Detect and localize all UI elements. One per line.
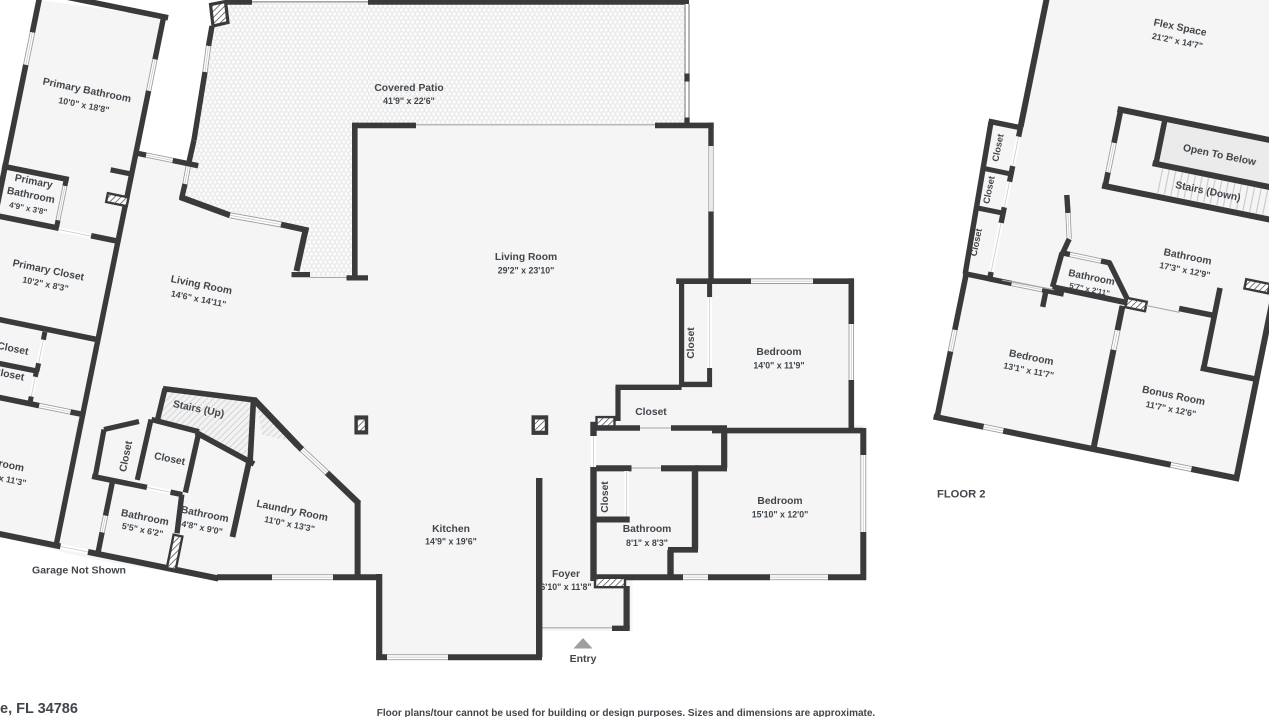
svg-text:Garage Not Shown: Garage Not Shown <box>32 565 126 577</box>
svg-text:Closet: Closet <box>635 407 667 418</box>
svg-text:41'9" x 22'6": 41'9" x 22'6" <box>383 96 435 106</box>
svg-text:Living Room: Living Room <box>495 252 557 263</box>
svg-text:Foyer: Foyer <box>552 569 580 580</box>
svg-text:14'9" x 19'6": 14'9" x 19'6" <box>425 537 477 547</box>
svg-text:Covered Patio: Covered Patio <box>374 83 443 94</box>
svg-text:Entry: Entry <box>570 653 597 665</box>
svg-text:Floor plans/tour cannot be use: Floor plans/tour cannot be used for buil… <box>377 708 876 717</box>
svg-text:Closet: Closet <box>600 481 611 513</box>
svg-text:e, FL 34786: e, FL 34786 <box>0 701 78 717</box>
svg-text:Bedroom: Bedroom <box>757 496 802 507</box>
svg-text:6'10" x 11'8": 6'10" x 11'8" <box>540 582 591 592</box>
svg-text:29'2" x 23'10": 29'2" x 23'10" <box>498 266 555 276</box>
svg-text:FLOOR 2: FLOOR 2 <box>937 489 985 501</box>
svg-text:Kitchen: Kitchen <box>432 524 470 535</box>
svg-text:15'10" x 12'0": 15'10" x 12'0" <box>752 510 809 520</box>
svg-text:Bathroom: Bathroom <box>623 524 672 535</box>
svg-text:Closet: Closet <box>686 327 697 359</box>
svg-text:14'0" x 11'9": 14'0" x 11'9" <box>753 361 804 371</box>
svg-text:8'1" x 8'3": 8'1" x 8'3" <box>626 538 668 548</box>
svg-text:Bedroom: Bedroom <box>756 347 801 358</box>
